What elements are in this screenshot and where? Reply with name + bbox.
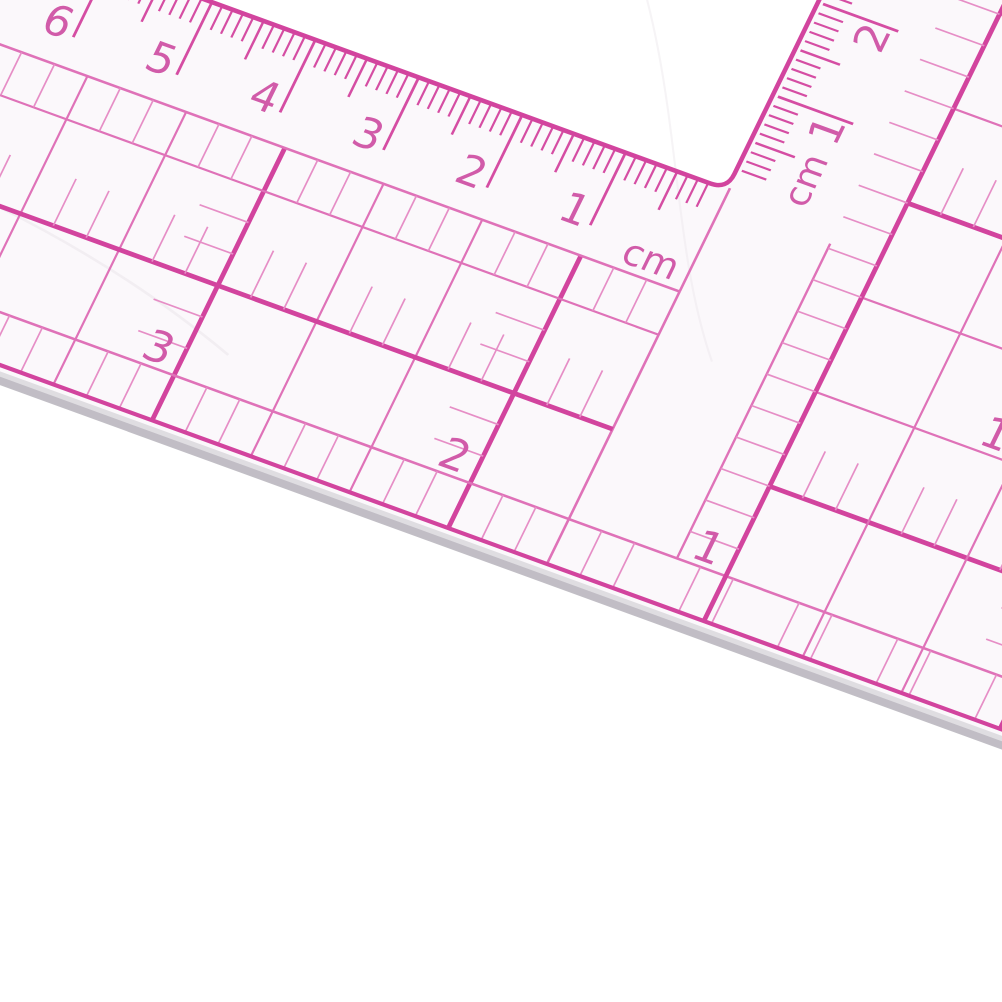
product-photo: 654321cm12cm3211: [0, 0, 1002, 1002]
ruler-photo-canvas: 654321cm12cm3211: [0, 0, 1002, 1002]
